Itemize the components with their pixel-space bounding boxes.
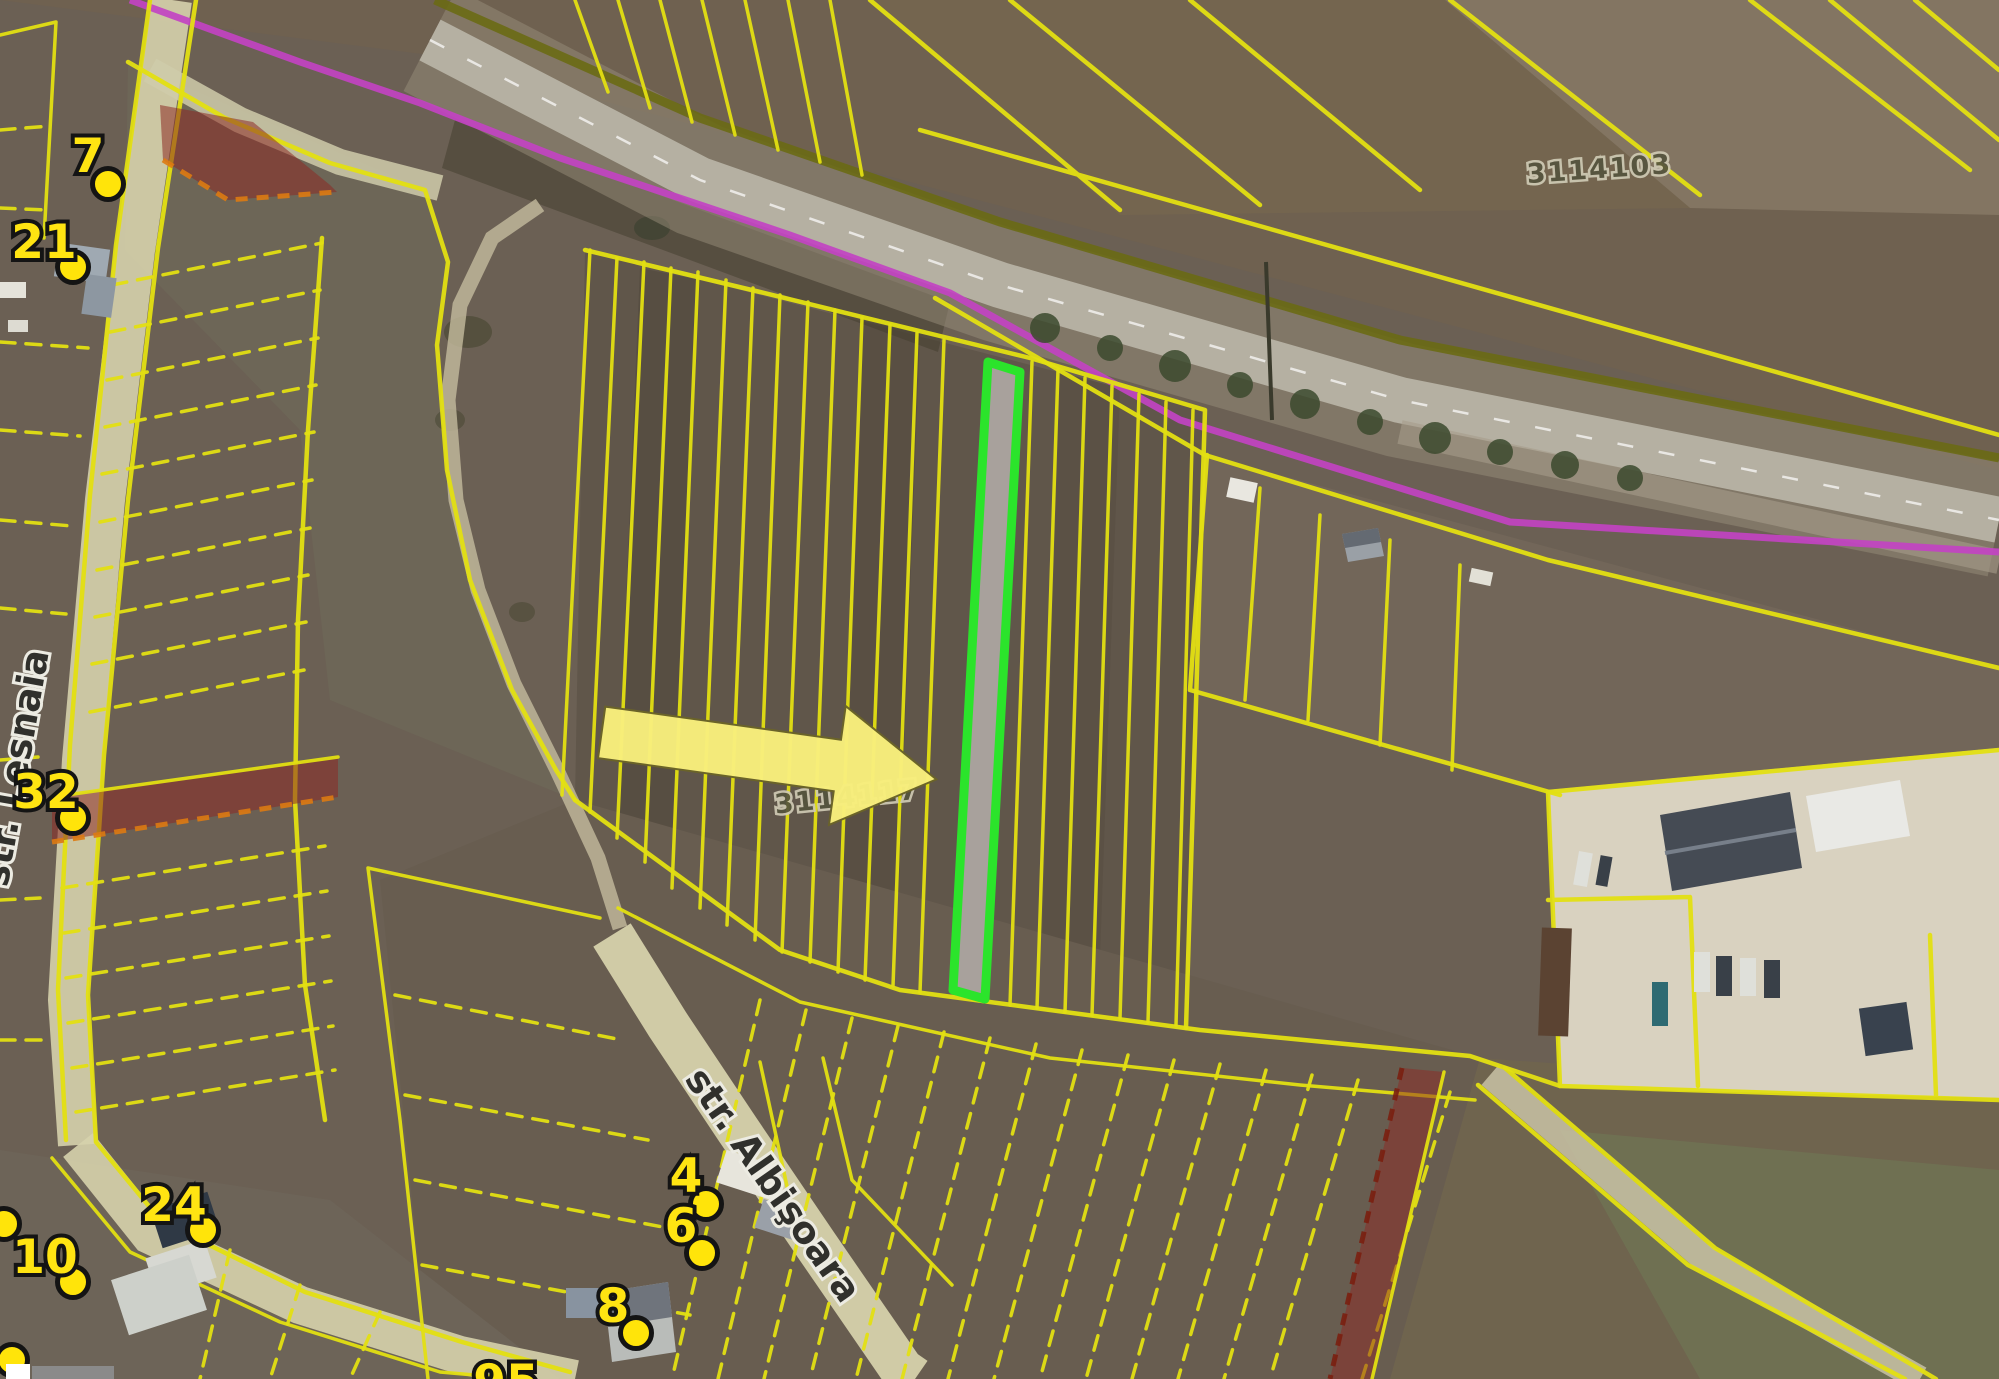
ui-scraps bbox=[6, 1364, 114, 1379]
ui-white-box bbox=[6, 1364, 30, 1379]
tree bbox=[1290, 389, 1320, 419]
bush bbox=[509, 602, 535, 622]
marker-label: 8 bbox=[597, 1279, 630, 1334]
tree bbox=[1419, 422, 1451, 454]
tree bbox=[1617, 465, 1643, 491]
marker-label: 32 bbox=[13, 765, 78, 820]
container bbox=[1652, 982, 1668, 1026]
house-roof bbox=[566, 1288, 600, 1318]
tree bbox=[1357, 409, 1383, 435]
marker-label: 95 bbox=[473, 1355, 538, 1379]
truck bbox=[1764, 960, 1780, 998]
truck bbox=[1716, 956, 1732, 996]
marker-label: 10 bbox=[12, 1230, 77, 1285]
marker-95[interactable]: 95 bbox=[473, 1355, 538, 1379]
tree bbox=[1487, 439, 1513, 465]
tree bbox=[1097, 335, 1123, 361]
tree bbox=[1159, 350, 1191, 382]
marker-label: 7 bbox=[72, 129, 105, 184]
map-canvas[interactable]: 3114103 3114117 str. Lesnaia str. Albişo… bbox=[0, 0, 1999, 1379]
house-roof bbox=[81, 274, 116, 318]
dark-shed bbox=[1859, 1002, 1913, 1056]
marker-dot-partial[interactable] bbox=[0, 1209, 20, 1240]
marker-label: 4 bbox=[670, 1149, 703, 1204]
marker-label: 21 bbox=[11, 215, 76, 270]
tree bbox=[1551, 451, 1579, 479]
shed bbox=[0, 282, 26, 298]
tree bbox=[1030, 313, 1060, 343]
tree bbox=[1227, 372, 1253, 398]
marker-label: 24 bbox=[141, 1178, 206, 1233]
shed bbox=[8, 320, 28, 332]
ui-gray-box bbox=[32, 1366, 114, 1379]
truck bbox=[1740, 958, 1756, 996]
brown-building bbox=[1538, 928, 1572, 1037]
marker-label: 6 bbox=[665, 1199, 698, 1254]
truck bbox=[1694, 952, 1710, 992]
